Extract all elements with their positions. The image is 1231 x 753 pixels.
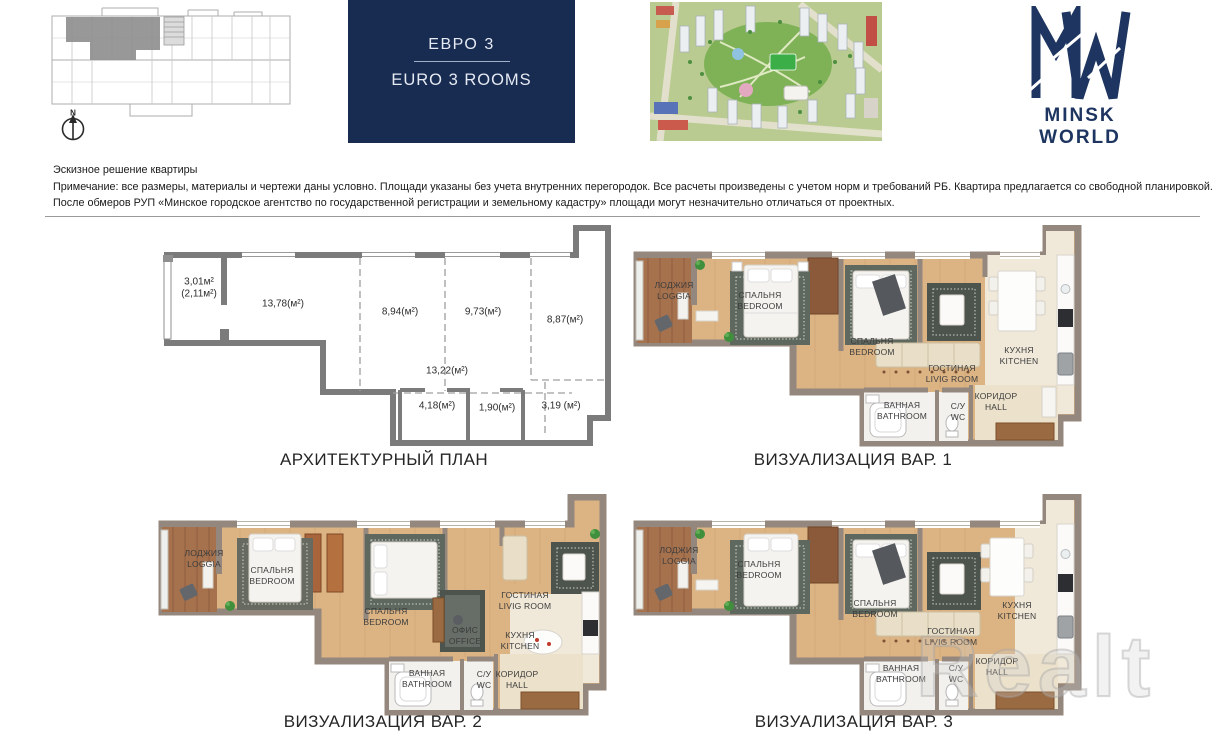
- flyer-page: N ЕВРО 3 EURO 3 ROOMS: [0, 0, 1231, 753]
- compass-north-label: N: [70, 109, 76, 118]
- area-label-room2: 8,94(м²): [382, 306, 418, 318]
- area-label-bathroom: 4,18(м²): [419, 400, 455, 412]
- room-label-hall: КОРИДОРHALL: [975, 391, 1018, 413]
- room-label-office: ОФИСOFFICE: [449, 625, 481, 647]
- apartment-type-banner: ЕВРО 3 EURO 3 ROOMS: [348, 0, 575, 143]
- separator-line: [45, 216, 1200, 217]
- room-label-bathroom: ВАННАЯBATHROOM: [402, 668, 452, 690]
- hall-furniture: [521, 692, 579, 709]
- area-label-room3: 9,73(м²): [465, 306, 501, 318]
- room-label-living: ГОСТИНАЯLIVIG ROOM: [926, 363, 979, 385]
- room-label-bedroom2: СПАЛЬНЯBEDROOM: [849, 336, 894, 358]
- room-label-loggia: ЛОДЖИЯLOGGIA: [659, 545, 698, 567]
- room-label-bedroom1: СПАЛЬНЯBEDROOM: [737, 290, 782, 312]
- caption-viz2: ВИЗУАЛИЗАЦИЯ ВАР. 2: [284, 712, 483, 732]
- room-label-bedroom2: СПАЛЬНЯBEDROOM: [363, 606, 408, 628]
- room-label-loggia: ЛОДЖИЯLOGGIA: [184, 548, 223, 570]
- room-label-bedroom2: СПАЛЬНЯBEDROOM: [852, 598, 897, 620]
- area-label-corridor: 13,22(м²): [426, 365, 468, 377]
- area-label-hall: 3,19 (м²): [541, 400, 580, 412]
- kitchen-furniture: [1057, 255, 1074, 385]
- room-label-wc: С/УWC: [951, 401, 966, 423]
- room-label-bedroom1: СПАЛЬНЯBEDROOM: [249, 565, 294, 587]
- room-label-loggia: ЛОДЖИЯLOGGIA: [654, 280, 693, 302]
- disclaimer-line3: После обмеров РУП «Минское городское аге…: [53, 195, 1228, 212]
- room-label-kitchen: КУХНЯKITCHEN: [1000, 345, 1039, 367]
- highlighted-apartment-unit: [66, 17, 160, 60]
- minsk-world-monogram: [1022, 6, 1132, 104]
- room-label-hall: КОРИДОРHALL: [496, 669, 539, 691]
- area-label-wc: 1,90(м²): [479, 402, 515, 414]
- building-location-plan: [38, 2, 303, 144]
- apartment-type-en: EURO 3 ROOMS: [391, 71, 531, 90]
- room-label-wc: С/УWC: [477, 669, 492, 691]
- wardrobe: [808, 527, 838, 583]
- room-label-bathroom: ВАННАЯBATHROOM: [877, 400, 927, 422]
- complex-aerial-photo: [650, 2, 882, 141]
- minsk-world-wordmark: MINSK WORLD: [1000, 105, 1160, 149]
- area-label-kitchen: 8,87(м²): [547, 314, 583, 326]
- area-label-loggia: 3,01м² (2,11м²): [181, 277, 217, 300]
- area-label-room1: 13,78(м²): [262, 298, 304, 310]
- realt-watermark: Realt: [916, 618, 1156, 717]
- title-divider: [414, 61, 510, 62]
- apartment-type-ru: ЕВРО 3: [428, 36, 494, 54]
- disclaimer-line2: Примечание: все размеры, материалы и чер…: [53, 179, 1228, 196]
- room-label-kitchen: КУХНЯKITCHEN: [501, 630, 540, 652]
- disclaimer-block: Эскизное решение квартиры Примечание: вс…: [53, 162, 1228, 212]
- room-label-living: ГОСТИНАЯLIVIG ROOM: [499, 590, 552, 612]
- disclaimer-title: Эскизное решение квартиры: [53, 162, 1228, 179]
- caption-viz1: ВИЗУАЛИЗАЦИЯ ВАР. 1: [754, 450, 953, 470]
- arch-floor-plan-drawing: [160, 225, 615, 450]
- caption-arch-plan: АРХИТЕКТУРНЫЙ ПЛАН: [280, 450, 488, 470]
- room-label-bedroom1: СПАЛЬНЯBEDROOM: [736, 559, 781, 581]
- wardrobe: [808, 258, 838, 314]
